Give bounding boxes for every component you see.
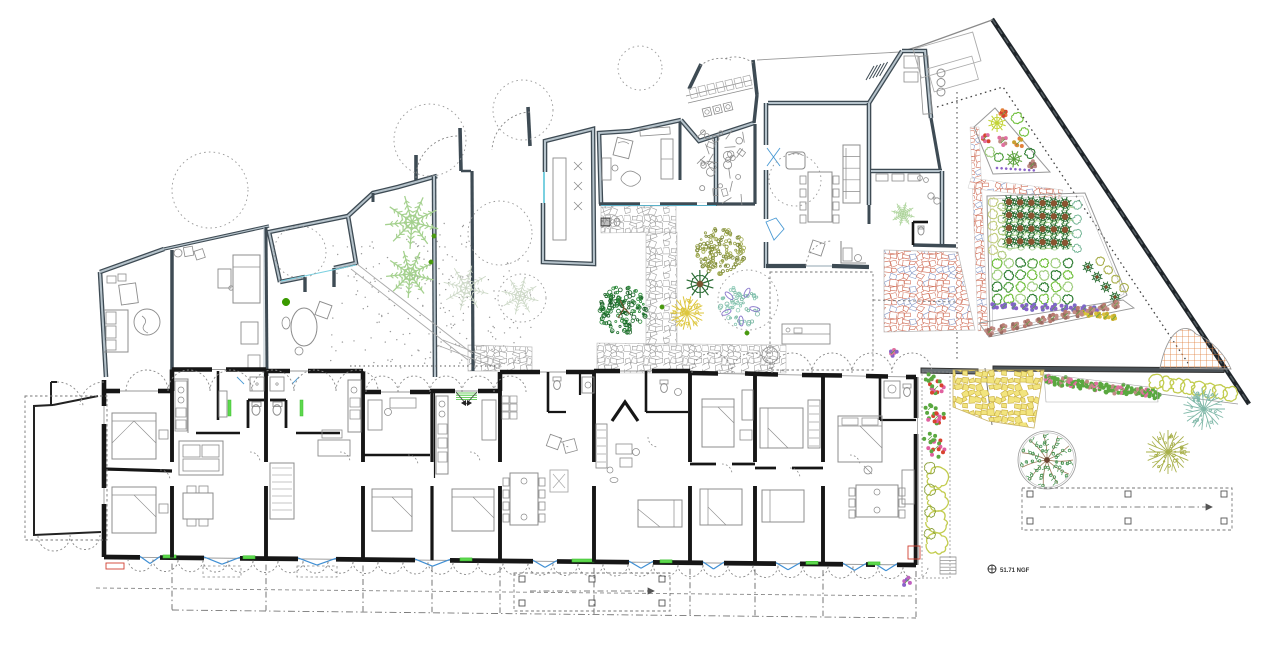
svg-text:51.71 NGF: 51.71 NGF [1000,568,1030,574]
